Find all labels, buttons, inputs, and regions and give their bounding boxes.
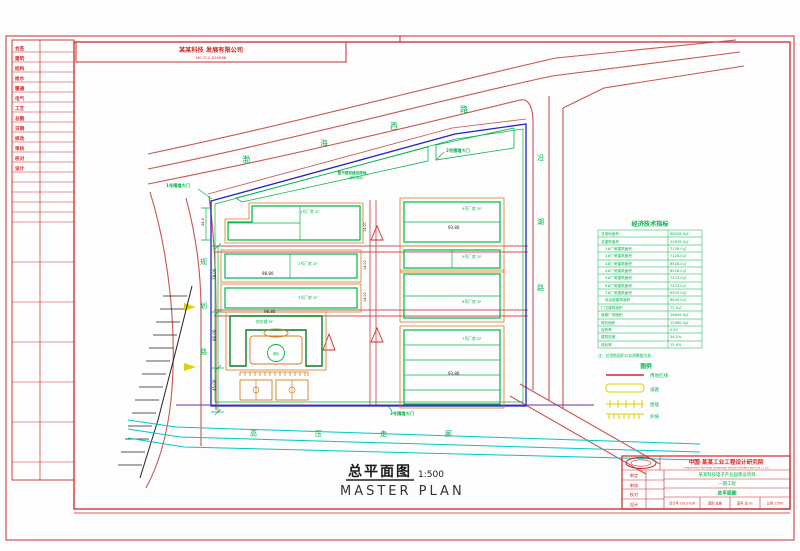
dim-text: 14.00 — [363, 260, 367, 270]
institute-logo — [626, 458, 656, 469]
drawing-name: 总平面图 — [717, 490, 736, 497]
north-road-edge-2 — [148, 52, 740, 169]
institute-logo-inner — [631, 460, 651, 466]
title-block: 中国·某某工业工程设计研究院 CHINA MOUMOU INDUSTRIAL E… — [622, 456, 790, 509]
strip-row: 审核 — [15, 145, 25, 152]
dim-text: 14.00 — [363, 222, 367, 232]
table-row-value: 7423.0㎡ — [670, 275, 687, 280]
reserve-area-outline — [236, 147, 428, 202]
table-row-value: 7128.0㎡ — [670, 246, 687, 251]
strip-row: 电气 — [15, 95, 25, 102]
east-road-name-char: 湖 — [537, 217, 544, 226]
table-row-value: 72.0㎡ — [670, 305, 682, 310]
role-label: 设计 — [630, 501, 638, 508]
signoff-strip: 会签 建筑 结构 给水 暖通 电气 工艺 总图 日期 修改 审核 校对 设计 — [12, 40, 74, 480]
drawing-title-en: MASTER PLAN — [340, 484, 465, 499]
building-label: 2号厂房 2F — [298, 261, 318, 266]
strip-row: 日期 — [15, 125, 25, 132]
west-road-name-char: 划 — [200, 301, 207, 310]
east-road-name-char: 沿 — [537, 153, 544, 162]
roundabout-label: 绿化 — [273, 351, 280, 356]
table-row-label: 绿化面积 — [601, 320, 616, 325]
strip-row: 工艺 — [15, 105, 25, 112]
strip-row: 校对 — [15, 155, 25, 162]
table-row-label: 2#厂房建筑面积 — [605, 253, 632, 258]
north-road-name-char: 海 — [320, 138, 328, 148]
strip-row: 建筑 — [14, 55, 25, 62]
table-row-value: 6520.0㎡ — [670, 290, 687, 295]
hv-corridor: 高 压 走 廊 — [128, 420, 700, 460]
legend-item-label: 围墙 — [650, 401, 659, 408]
north-road-name-char: 路 — [460, 104, 468, 114]
dim-text: 93.80 — [448, 225, 460, 230]
building-6: 6号厂房 3F — [400, 270, 504, 322]
west-road-name-char: 规 — [200, 257, 207, 266]
strip-row: 暖通 — [15, 85, 25, 92]
reserve-area-label-2: （绿化用地） — [346, 175, 365, 180]
north-road-name-char: 渤 — [242, 154, 250, 164]
strip-row: 设计 — [15, 165, 25, 172]
southeast-road — [510, 384, 660, 474]
dim-text: 66.00 — [212, 329, 217, 341]
legend-item-label: 护坡 — [650, 413, 659, 420]
roads: 渤 海 西 路 沿 湖 路 规 划 路 — [146, 40, 744, 488]
table-row-value: 15.0% — [670, 343, 682, 347]
building-5: 5号厂房 1F — [400, 246, 504, 272]
table-row-value: 7128.0㎡ — [670, 253, 687, 258]
sheet-header-box: 某某科技 发展有限公司 NO.7C2-K20568 — [76, 42, 346, 62]
building-1: 1号厂房 2F — [225, 203, 363, 243]
reserve-area-outline-2 — [436, 128, 514, 160]
table-row-value: 34.2% — [670, 335, 682, 339]
dim-text: 45.00 — [212, 379, 217, 391]
institute-name: 中国·某某工业工程设计研究院 — [689, 458, 764, 466]
table-row-label: 综合楼建筑面积 — [605, 297, 631, 302]
gate-arrow-marker — [371, 226, 383, 342]
title-block-cell: 设计号 2013-028 — [669, 501, 695, 506]
table-row-value: 8645.0㎡ — [670, 297, 687, 302]
table-title: 经济技术指标 — [631, 220, 669, 228]
building-7: 7号厂房 2F — [400, 326, 504, 408]
strip-row: 总图 — [15, 115, 25, 122]
table-row-label: 道路广场面积 — [601, 312, 623, 317]
corridor-name-char: 压 — [315, 430, 322, 438]
courtyard-border — [250, 336, 302, 364]
legend-slope-symbol — [606, 414, 644, 419]
corridor-name-char: 廊 — [445, 429, 452, 438]
table-row-label: 6#厂房建筑面积 — [605, 283, 632, 288]
dim-text: 93.80 — [448, 371, 460, 376]
strip-row: 修改 — [14, 135, 25, 142]
title-block-cell: 图号 总-01 — [737, 501, 753, 506]
indicator-table: 经济技术指标 总用地面积86528.0㎡ 总建筑面积52876.0㎡ 1#厂房建… — [598, 220, 702, 358]
table-row-label: 5#厂房建筑面积 — [605, 275, 632, 280]
table-row-value: 12980.0㎡ — [670, 320, 689, 325]
table-row-label: 总用地面积 — [601, 231, 619, 236]
dim-text: 78.00 — [212, 268, 217, 280]
strip-row: 给水 — [15, 75, 25, 82]
dim-text: 24.0 — [201, 217, 205, 226]
corridor-name-char: 高 — [250, 429, 257, 438]
role-label: 审核 — [630, 482, 639, 489]
strip-row: 结构 — [15, 65, 25, 72]
cad-master-plan-sheet: 会签 建筑 结构 给水 暖通 电气 工艺 总图 日期 修改 审核 校对 设计 某… — [0, 0, 800, 546]
north-road-edge-3 — [148, 100, 533, 390]
gate-label-3: 3号围墙大门 — [390, 410, 414, 417]
drawing-title-cn: 总平面图 — [348, 463, 412, 480]
building-label: 7号厂房 2F — [462, 336, 482, 341]
north-road-name-char: 西 — [390, 122, 398, 131]
fence-line — [215, 129, 523, 402]
building-label: 综合楼 5F — [256, 319, 273, 324]
building-label: 5号厂房 1F — [462, 254, 482, 259]
building-2: 2号厂房 2F — [221, 250, 361, 282]
west-road-name-char: 路 — [200, 347, 207, 356]
project-name: 某某科技电子产业园建设项目 — [698, 471, 755, 478]
table-row-label: 1#厂房建筑面积 — [605, 246, 632, 251]
table-row-label: 4#厂房建筑面积 — [605, 268, 632, 273]
legend: 图例 用地红线 道路 围墙 护坡 — [606, 362, 668, 420]
building-label: 4号厂房 3F — [462, 206, 482, 211]
table-row-value: 6528.0㎡ — [670, 268, 687, 273]
slope-hatch — [118, 286, 192, 478]
table-row-value: 18645.0㎡ — [670, 312, 689, 317]
building-3: 3号厂房 2F — [221, 284, 361, 312]
dim-text: 14.00 — [363, 292, 367, 302]
table-row-label: 总建筑面积 — [601, 239, 619, 244]
building-label: 1号厂房 2F — [300, 209, 320, 214]
title-block-cell: 图别 总施 — [708, 501, 723, 506]
drawing-title-scale: 1:500 — [418, 470, 444, 480]
company-number: NO.7C2-K20568 — [196, 55, 227, 60]
building-4: 4号厂房 3F — [400, 198, 504, 246]
trellis-row — [240, 372, 308, 376]
legend-wall-symbol — [606, 400, 644, 408]
table-row-value: 7423.0㎡ — [670, 283, 687, 288]
drawing-title: 总平面图 1:500 MASTER PLAN — [340, 463, 465, 499]
east-road-name-char: 路 — [537, 283, 544, 292]
company-name: 某某科技 发展有限公司 — [178, 46, 243, 54]
dim-text: 98.80 — [264, 309, 276, 314]
table-row-label: 3#厂房建筑面积 — [605, 261, 632, 266]
table-row-value: 86528.0㎡ — [670, 231, 689, 236]
legend-title: 图例 — [640, 362, 652, 370]
corridor-name-char: 走 — [380, 430, 387, 438]
site-boundary: 暂不规划建设用地 （绿化用地） — [176, 124, 594, 406]
project-phase: 一期工程 — [718, 480, 736, 487]
west-curve-road — [146, 192, 173, 488]
role-label: 校对 — [630, 491, 638, 498]
gate-label-1: 1号围墙大门 — [166, 182, 190, 189]
building-label: 6号厂房 3F — [462, 299, 482, 304]
title-block-cell: 比例 1:500 — [767, 501, 784, 506]
table-row-label: 建筑密度 — [601, 334, 616, 339]
dim-text: 98.80 — [262, 271, 274, 276]
reserve-area-label: 暂不规划建设用地 — [338, 170, 367, 175]
table-row-value: 6528.0㎡ — [670, 261, 687, 266]
legend-item-label: 道路 — [650, 386, 659, 393]
table-row-value: 0.61 — [670, 328, 678, 332]
legend-road-symbol — [606, 384, 644, 392]
entrance-arrow — [184, 303, 196, 371]
table-row-label: 7#厂房建筑面积 — [605, 290, 632, 295]
table-row-label: 绿化率 — [601, 342, 612, 347]
gate-label-2: 2号围墙大门 — [446, 147, 470, 154]
office-gate-marker — [323, 334, 335, 350]
table-row-label: 门卫建筑面积 — [601, 305, 623, 310]
strip-row: 会签 — [14, 45, 25, 52]
institute-name-en: CHINA MOUMOU INDUSTRIAL ENGINEERING DESI… — [683, 467, 769, 470]
role-label: 审定 — [630, 472, 638, 479]
west-road-edge-1 — [186, 198, 201, 446]
table-footnote: 注：总用地面积以实测数据为准 — [598, 353, 651, 358]
table-row-value: 52876.0㎡ — [670, 239, 689, 244]
legend-item-label: 用地红线 — [650, 372, 668, 379]
basketball-courts — [240, 380, 308, 400]
drawing-canvas: 会签 建筑 结构 给水 暖通 电气 工艺 总图 日期 修改 审核 校对 设计 某… — [0, 0, 800, 546]
building-label: 3号厂房 2F — [298, 295, 318, 300]
table-row-label: 容积率 — [601, 327, 612, 332]
